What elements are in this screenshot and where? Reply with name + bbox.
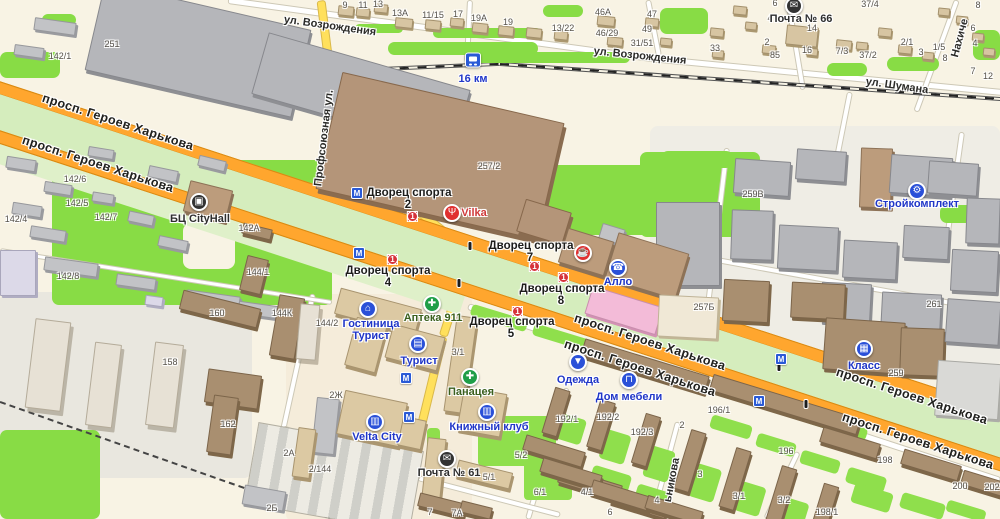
house-number: 4 bbox=[654, 495, 659, 505]
metro-station-label[interactable]: Дворец спорта bbox=[469, 316, 554, 328]
supermarket-icon[interactable]: ▦ bbox=[855, 340, 873, 358]
house-number: 142/4 bbox=[5, 214, 28, 224]
house-number: 8 bbox=[942, 53, 947, 63]
house-number: 196 bbox=[778, 446, 793, 456]
house-number: 7 bbox=[970, 66, 975, 76]
house-number: 257Б bbox=[694, 302, 715, 312]
house-number: 142/6 bbox=[64, 174, 87, 184]
poi-glyph: ⊓ bbox=[625, 375, 633, 385]
house-number: 2Б bbox=[267, 503, 278, 513]
house-number: 6 bbox=[970, 23, 975, 33]
metro-exit-number[interactable]: 4 bbox=[385, 277, 391, 289]
building bbox=[733, 5, 748, 15]
house-number: 11/15 bbox=[422, 10, 444, 20]
metro-station-label[interactable]: Дворец спорта bbox=[519, 283, 604, 295]
house-number: 47 bbox=[647, 9, 657, 19]
poi-label[interactable]: Турист bbox=[352, 330, 389, 342]
building bbox=[945, 298, 1000, 346]
house-number: 31/51 bbox=[631, 38, 654, 48]
restaurant-icon[interactable]: Ψ bbox=[443, 204, 461, 222]
shopping-mall-icon[interactable]: ▥ bbox=[366, 413, 384, 431]
house-number: 3 bbox=[918, 47, 923, 57]
house-number: 7 bbox=[427, 507, 432, 517]
house-number: 142/7 bbox=[95, 212, 118, 222]
poi-label[interactable]: Дом мебели bbox=[596, 391, 663, 403]
house-number: 144К bbox=[272, 308, 292, 318]
courtyard-green bbox=[709, 414, 753, 440]
house-number: 49 bbox=[642, 24, 652, 34]
traffic-light-icon bbox=[468, 241, 473, 251]
building bbox=[722, 279, 770, 323]
house-number: 259 bbox=[888, 368, 903, 378]
poi-glyph: ✉ bbox=[790, 1, 798, 11]
house-number: 251 bbox=[104, 39, 119, 49]
building bbox=[795, 148, 847, 182]
house-number: 2/144 bbox=[309, 464, 332, 474]
metro-entrance-icon[interactable]: М bbox=[351, 187, 363, 199]
house-number: 1/5 bbox=[933, 42, 946, 52]
house-number: 2/1 bbox=[901, 37, 914, 47]
map-canvas[interactable]: МММММММ1М1М1М1М1✉▣Ψ☕☎⚙⌂✚▤✚▥▥✉▼⊓▦25191113… bbox=[0, 0, 1000, 519]
poi-label[interactable]: Аптека 911 bbox=[404, 312, 463, 324]
metro-line-number: 1 bbox=[407, 211, 418, 222]
house-number: 144/1 bbox=[247, 267, 270, 277]
house-number: 142/1 bbox=[49, 51, 72, 61]
house-number: 257/2 bbox=[478, 161, 501, 171]
house-number: 12 bbox=[983, 71, 993, 81]
house-number: 196/1 bbox=[708, 405, 731, 415]
railway-station-icon[interactable] bbox=[465, 53, 481, 68]
pharmacy-icon[interactable]: ✚ bbox=[461, 368, 479, 386]
house-number: 37/2 bbox=[859, 50, 877, 60]
metro-entrance-icon[interactable]: М bbox=[775, 353, 787, 365]
poi-glyph: ✚ bbox=[466, 372, 474, 382]
street-road bbox=[660, 56, 1000, 96]
poi-glyph: ▣ bbox=[194, 197, 203, 207]
courtyard-green bbox=[799, 449, 841, 474]
metro-station-label[interactable]: Дворец спорта bbox=[366, 187, 451, 199]
house-number: 6 bbox=[772, 0, 777, 8]
building bbox=[927, 160, 979, 196]
house-number: 11 bbox=[358, 0, 367, 10]
house-number: 198 bbox=[877, 455, 892, 465]
house-number: 9 bbox=[342, 0, 347, 10]
house-number: 142А bbox=[238, 223, 259, 233]
park-area bbox=[0, 430, 100, 519]
traffic-light-icon bbox=[804, 399, 809, 409]
poi-glyph: ⌂ bbox=[365, 304, 371, 314]
poi-glyph: ✚ bbox=[428, 299, 436, 309]
metro-exit-number[interactable]: 2 bbox=[405, 199, 411, 211]
house-number: 3 bbox=[697, 469, 702, 479]
poi-label[interactable]: Velta City bbox=[352, 431, 402, 443]
poi-label[interactable]: Гостиница bbox=[343, 318, 400, 330]
building bbox=[938, 7, 951, 16]
building bbox=[790, 282, 846, 321]
house-number: 192/2 bbox=[597, 412, 620, 422]
building bbox=[710, 27, 725, 37]
poi-label[interactable]: Книжный клуб bbox=[449, 421, 528, 433]
house-number: 2А bbox=[283, 448, 294, 458]
house-number: 37/4 bbox=[861, 0, 879, 9]
park-area bbox=[661, 151, 733, 168]
house-number: 7/3 bbox=[836, 46, 849, 56]
poi-label[interactable]: Vilka bbox=[461, 207, 487, 219]
house-number: 17 bbox=[453, 9, 463, 19]
house-number: 158 bbox=[162, 357, 177, 367]
house-number: 259В bbox=[742, 189, 763, 199]
house-number: 19 bbox=[503, 17, 513, 27]
metro-exit-number[interactable]: 7 bbox=[527, 252, 533, 264]
house-number: 13А bbox=[392, 8, 408, 18]
house-number: 142/5 bbox=[66, 198, 89, 208]
poi-label[interactable]: Почта № 66 bbox=[770, 13, 833, 25]
building bbox=[878, 27, 893, 37]
poi-label[interactable]: БЦ CityHall bbox=[170, 213, 230, 225]
metro-entrance-icon[interactable]: М bbox=[403, 411, 415, 423]
building bbox=[950, 249, 999, 293]
railway-station-label[interactable]: 16 км bbox=[459, 73, 488, 85]
house-number: 85 bbox=[770, 50, 780, 60]
house-number: 3/1 bbox=[452, 347, 465, 357]
building bbox=[965, 197, 1000, 244]
poi-glyph: Ψ bbox=[448, 208, 456, 218]
poi-glyph: ▥ bbox=[482, 407, 491, 417]
poi-glyph: ▦ bbox=[859, 344, 868, 354]
metro-station-label[interactable]: Дворец спорта bbox=[345, 265, 430, 277]
house-number: 198/1 bbox=[816, 507, 839, 517]
metro-station-label[interactable]: Дворец спорта bbox=[488, 240, 573, 252]
building bbox=[777, 224, 839, 271]
house-number: 13/22 bbox=[552, 23, 575, 33]
building bbox=[526, 27, 543, 39]
building bbox=[730, 209, 774, 260]
poi-label[interactable]: Класс bbox=[848, 360, 880, 372]
house-number: 2Ж bbox=[329, 390, 342, 400]
house-number: 162 bbox=[220, 419, 235, 429]
house-number: 200 bbox=[952, 481, 967, 491]
cafe-icon[interactable]: ☕ bbox=[574, 244, 592, 262]
house-number: 4/1 bbox=[581, 487, 594, 497]
building bbox=[745, 21, 758, 30]
courtyard-green bbox=[899, 492, 947, 519]
house-number: 46А bbox=[595, 7, 611, 17]
poi-glyph: ⚙ bbox=[913, 186, 922, 196]
courtyard-green bbox=[850, 483, 894, 514]
metro-entrance-icon[interactable]: М bbox=[753, 395, 765, 407]
building bbox=[842, 240, 898, 281]
poi-label[interactable]: Стройкомплект bbox=[875, 198, 959, 210]
poi-label[interactable]: Панацея bbox=[448, 386, 494, 398]
house-number: 142/8 bbox=[57, 271, 80, 281]
house-number: 8 bbox=[975, 0, 980, 10]
house-number: 13 bbox=[373, 0, 383, 9]
building bbox=[983, 47, 996, 56]
metro-entrance-icon[interactable]: М bbox=[400, 372, 412, 384]
pharmacy-icon[interactable]: ✚ bbox=[423, 295, 441, 313]
metro-exit-number[interactable]: 5 bbox=[508, 328, 514, 340]
house-number: 5/1 bbox=[483, 472, 496, 482]
building bbox=[922, 51, 935, 60]
poi-label[interactable]: Алло bbox=[604, 276, 633, 288]
poi-glyph: ▥ bbox=[370, 417, 379, 427]
tourist-office-icon[interactable]: ▤ bbox=[409, 335, 427, 353]
park-area bbox=[543, 5, 583, 17]
street-name-label: ул. Возрождения bbox=[593, 45, 687, 67]
street-name-label: Нахиче bbox=[949, 17, 971, 58]
poi-label[interactable]: Турист bbox=[400, 355, 437, 367]
poi-glyph: ▼ bbox=[573, 357, 583, 367]
building bbox=[395, 17, 414, 29]
house-number: 261 bbox=[926, 299, 941, 309]
building bbox=[902, 225, 950, 260]
house-number: 202 bbox=[984, 482, 999, 492]
house-number: 2 bbox=[679, 420, 684, 430]
post-office-icon[interactable]: ✉ bbox=[438, 450, 456, 468]
building bbox=[472, 22, 489, 34]
traffic-light-icon bbox=[457, 278, 462, 288]
house-number: 33 bbox=[710, 43, 720, 53]
house-number: 7А bbox=[451, 508, 462, 518]
park-area bbox=[660, 8, 708, 34]
house-number: 144/2 bbox=[316, 318, 339, 328]
business-center-icon[interactable]: ▣ bbox=[190, 193, 208, 211]
metro-exit-number[interactable]: 8 bbox=[558, 295, 564, 307]
metro-line-number: 1 bbox=[512, 306, 523, 317]
house-number: 2 bbox=[764, 37, 769, 47]
house-number: 3/1 bbox=[733, 491, 746, 501]
phone-store-icon[interactable]: ☎ bbox=[609, 259, 627, 277]
poi-glyph: ☕ bbox=[577, 248, 589, 258]
house-number: 192/3 bbox=[631, 427, 654, 437]
metro-line-number: 1 bbox=[558, 272, 569, 283]
house-number: 16 bbox=[802, 45, 812, 55]
building bbox=[425, 19, 442, 31]
house-number: 160 bbox=[209, 308, 224, 318]
poi-glyph: ☎ bbox=[612, 263, 624, 273]
courtyard-green bbox=[945, 499, 987, 519]
poi-label[interactable]: Почта № 61 bbox=[418, 467, 481, 479]
building bbox=[660, 37, 673, 46]
house-number: 5/2 bbox=[515, 450, 528, 460]
building bbox=[0, 250, 36, 296]
house-number: 19А bbox=[471, 13, 487, 23]
house-number: 6/1 bbox=[534, 487, 547, 497]
park-area bbox=[827, 63, 867, 76]
poi-label[interactable]: Одежда bbox=[557, 374, 599, 386]
house-number: 46/29 bbox=[596, 28, 619, 38]
hotel-icon[interactable]: ⌂ bbox=[359, 300, 377, 318]
book-store-icon[interactable]: ▥ bbox=[478, 403, 496, 421]
house-number: 6 bbox=[607, 507, 612, 517]
metro-line-number: 1 bbox=[387, 254, 398, 265]
poi-glyph: ▤ bbox=[413, 339, 422, 349]
poi-glyph: ✉ bbox=[443, 454, 451, 464]
house-number: 192/1 bbox=[556, 414, 579, 424]
house-number: 4 bbox=[972, 38, 977, 48]
metro-entrance-icon[interactable]: М bbox=[353, 247, 365, 259]
house-number: 3/2 bbox=[778, 495, 791, 505]
